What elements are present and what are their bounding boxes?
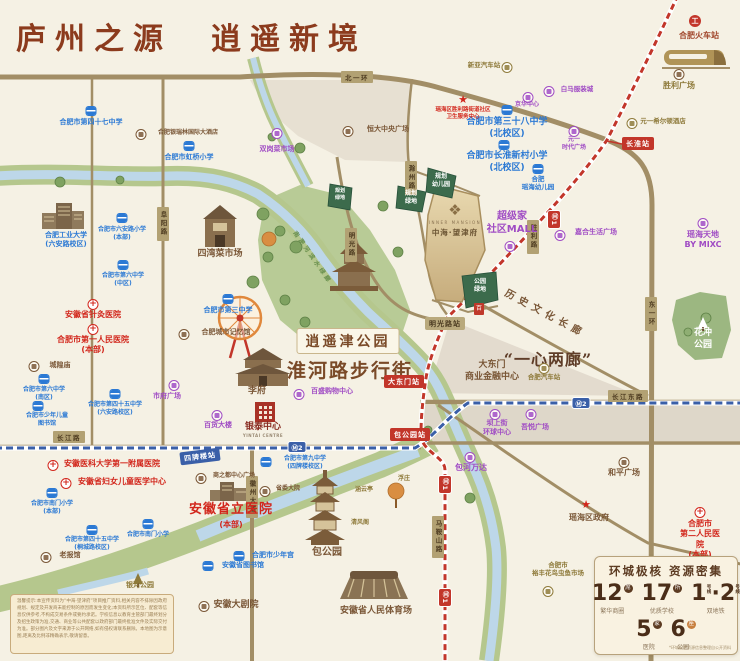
school-nanmen-south: 合肥市南门小学 (127, 531, 169, 539)
qingfengge-label: 清风阁 (351, 519, 369, 527)
yintai-logo (255, 402, 275, 422)
school-icon (262, 458, 271, 466)
mall-icon (212, 410, 223, 421)
health-service-center: 瑶海区胜利路街道社区 卫生服务中心 (435, 107, 490, 121)
road-changjianglu: 长江路 (53, 431, 85, 443)
hotel-icon (136, 129, 147, 140)
jinghua-center: 京华中心 (515, 101, 539, 109)
siwan-market-icon (203, 205, 237, 247)
peoples-stadium: 安徽省人民体育场 (340, 606, 412, 618)
museum-icon (41, 552, 52, 563)
school-hongqiao: 合肥市虹桥小学 (165, 153, 214, 162)
school-icon (48, 489, 57, 497)
plaza-icon (169, 380, 180, 391)
metro-1-badge: Ⓜ1 (547, 210, 561, 229)
school-no3: 合肥市第三中学 (204, 306, 253, 315)
hefei-bus-station: 合肥汽车站 (528, 373, 561, 381)
school-icon (503, 106, 512, 114)
hospital-second-people: 合肥市 第二人民医院 (本部) (680, 519, 720, 561)
station-changhuai: 长淮站 (622, 137, 654, 150)
site-name: 中海·望津府 (421, 227, 489, 238)
school-hfut: 合肥工业大学 (六安路校区) (45, 231, 87, 249)
school-icon (534, 165, 543, 173)
station-dadongmen: 大东门站 (384, 375, 424, 388)
road-beiyihuan: 北一环 (341, 71, 373, 83)
siwan-market-label: 四湾菜市场 (197, 249, 242, 261)
site-name-en: INNER MANSION (421, 220, 489, 225)
stat-hospitals: 5家 医院 (636, 619, 661, 651)
jiahe-plaza: 嘉合生活广场 (575, 228, 617, 237)
yintai-center: 银泰中心 (245, 422, 281, 434)
mall-icon (555, 230, 566, 241)
anhui-grand-theater: 安徽大剧院 (213, 600, 258, 612)
bus-station-icon (502, 62, 513, 73)
school-no45-south: 合肥市第四十五中学 (桐城路校区) (65, 536, 119, 552)
hospital-shengli: 安徽省立医院 (189, 502, 273, 519)
fuzhuang-label: 浮庄 (398, 475, 410, 483)
xiaoyaojin-park-label: 逍遥津公园 (297, 328, 400, 354)
laobao-hall: 老报馆 (60, 551, 81, 560)
yintai-center-en: YINTAI CENTRE (243, 433, 283, 438)
metro-2-badge: Ⓜ2 (287, 441, 306, 453)
school-nanmen-north: 合肥市南门小学 (本部) (31, 500, 73, 516)
stat-metro: 1号线·2号线 双地铁 (691, 583, 740, 615)
school-icon (40, 375, 49, 383)
yaohai-kindergarten: 合肥 瑶海幼儿园 (522, 175, 555, 192)
site-logo-icon: ❖ (421, 203, 489, 218)
yinruilin-hotel: 合肥银瑞林国际大酒店 (158, 129, 218, 137)
baogongyuan-label: 包公园 (312, 546, 342, 559)
station-baogongyuan: 包公园站 (390, 428, 430, 441)
stat-schools: 17所 优质学校 (642, 583, 683, 615)
school-icon (119, 261, 128, 269)
hospital-building-icon (210, 482, 250, 501)
baima-clothing-city: 白马服装城 (561, 85, 594, 93)
school-icon (235, 552, 244, 560)
school-no45-north: 合肥市第四十五中学 (六安路校区) (88, 401, 142, 417)
school-icon (111, 390, 120, 398)
planned-kindergarten-label: 规划 幼儿园 (432, 173, 450, 189)
station-mingguanglu: 明光路站 (425, 317, 465, 330)
heping-plaza: 和平广场 (608, 468, 640, 478)
hospital-cross-icon (88, 299, 99, 310)
yaohai-government: 瑶海区政府 (569, 513, 609, 523)
kids-library: 合肥市少年儿童 图书馆 (26, 412, 68, 428)
yinhe-park-label: 银河公园 (126, 581, 154, 590)
hospital-cross-icon (48, 460, 59, 471)
plaza-icon (619, 457, 630, 468)
shengli-plaza: 胜利广场 (663, 81, 695, 91)
train-icon (662, 50, 730, 68)
road-changjiangdonglu: 长江东路 (608, 390, 648, 402)
hospital-shengli-sub: (本部) (219, 520, 242, 530)
youth-palace: 合肥市少年宫 (252, 551, 294, 560)
railway-station-label: 合肥火车站 (679, 31, 719, 41)
lifu-label: 李府 (248, 386, 266, 398)
xinya-bus-station: 新亚汽车站 (468, 61, 501, 69)
school-icon (144, 520, 153, 528)
school-icon (118, 214, 127, 222)
chenghuang-temple: 城隍庙 (50, 361, 71, 370)
theater-icon (199, 601, 210, 612)
school-no6-south: 合肥市第六中学 (南区) (23, 386, 65, 402)
road-mingguanglu: 明光路 (345, 228, 357, 262)
mall-icon (465, 452, 476, 463)
hospital-anyi-fuyuan: 安徽医科大学第一附属医院 (64, 459, 160, 469)
market-icon (272, 128, 283, 139)
disclaimer-text: 温馨提示:本宣传资料为“中海·望津府”项目推广资料,相关内容不排除因政府规划、规… (10, 594, 174, 654)
road-maanshanlu: 马鞍山路 (432, 516, 444, 558)
planned-green-label: 规划 绿地 (405, 190, 417, 206)
mall-icon (698, 218, 709, 229)
plaza-icon (343, 126, 354, 137)
hengda-central-plaza: 恒大中央广场 (367, 125, 409, 134)
hilton-hotel: 元一希尔顿酒店 (640, 117, 686, 125)
park-green-label: 公园 绿地 (474, 278, 486, 294)
hotel-icon (627, 118, 638, 129)
stat-business: 12席 繁华商圈 (592, 583, 633, 615)
temple-icon (29, 361, 40, 372)
yaohai-tiandi: 瑶海天地 BY MIXC (685, 230, 722, 251)
star-icon (458, 94, 468, 105)
school-icon (87, 107, 96, 115)
school-no47: 合肥市第四十七中学 (60, 118, 123, 127)
hospital-cross-icon (88, 324, 99, 335)
star-icon (581, 499, 591, 510)
map-poster: 庐州之源 逍遥新境 (0, 0, 740, 661)
baida-logo: 百 (474, 303, 484, 315)
hospital-fuyou: 安徽省妇女儿童医学中心 (78, 477, 166, 487)
hospital-cross-icon (695, 507, 706, 518)
stats-row-1: 12席 繁华商圈 17所 优质学校 1号线·2号线 双地铁 (595, 583, 737, 615)
shengwei-compound: 省委大院 (276, 485, 300, 493)
market-icon (543, 586, 554, 597)
school-icon (500, 141, 509, 149)
mall-icon (196, 473, 207, 484)
baohe-wanda: 包河万达 (455, 463, 487, 473)
yuanyi-times-plaza: 元一 时代广场 (562, 136, 586, 152)
department-store: 百货大楼 (204, 421, 232, 430)
school-luanlu-primary: 合肥市六安路小学 (本部) (98, 226, 146, 242)
metro-1-badge: Ⓜ1 (438, 475, 452, 494)
hospital-first-people: 合肥市第一人民医院 (本部) (57, 335, 129, 356)
school-icon (88, 526, 97, 534)
road-dongyihuan: 东一环 (645, 297, 657, 331)
shuanggang-market: 双岗菜市场 (260, 145, 295, 154)
dadongmen-business-label: 大东门 商业金融中心 (465, 360, 519, 383)
shangzhidu-plaza: 商之都中心广场 (213, 472, 255, 480)
metro-1-badge: Ⓜ1 (438, 588, 452, 607)
city-memory-hall: 合肥城市记忆馆 (202, 328, 251, 337)
hospital-cross-icon (61, 478, 72, 489)
hfut-building-icon (42, 203, 84, 229)
shifu-plaza: 市府广场 (153, 392, 181, 401)
wuyue-plaza: 吾悦广场 (521, 423, 549, 432)
parkson-mall: 百盛购物中心 (311, 387, 353, 396)
mall-icon (544, 86, 555, 97)
tree-icon (698, 312, 708, 328)
school-no9: 合肥市第九中学 (四牌楼校区) (284, 455, 326, 471)
school-icon (204, 562, 213, 570)
school-no6-north: 合肥市第六中学 (中区) (102, 272, 144, 288)
mall-icon (505, 241, 516, 252)
stats-footnote: *环城配套资源信息整理自公开资料 (669, 645, 731, 651)
mall-icon (526, 409, 537, 420)
museum-icon (179, 329, 190, 340)
hanyunting-label: 涵云亭 (355, 486, 373, 494)
yufeng-market: 合肥市 裕丰花鸟虫鱼市场 (532, 561, 584, 578)
stats-title: 环城极核 资源密集 (595, 563, 737, 579)
school-icon (34, 402, 43, 410)
plaza-icon (674, 69, 685, 80)
bashangjie-center: 坝上街 环球中心 (483, 419, 511, 437)
hospital-zhenjiu: 安徽省针灸医院 (65, 310, 121, 320)
mall-icon (294, 389, 305, 400)
chaojijia-mall: 超级家 社区MALL (487, 210, 537, 236)
stadium-icon (340, 571, 408, 599)
lifu-building-icon (235, 348, 291, 386)
planned-green-label: 规划 绿地 (335, 188, 345, 201)
anhui-library: 安徽省图书馆 (222, 561, 264, 570)
railway-icon: 工 (689, 15, 701, 27)
road-fuyanglu: 阜阳路 (157, 207, 169, 241)
school-icon (185, 142, 194, 150)
page-title: 庐州之源 逍遥新境 (16, 14, 367, 58)
huachong-park-label: 花冲 公园 (694, 328, 712, 351)
metro-2-badge: Ⓜ2 (571, 397, 590, 409)
school-icon (224, 295, 233, 303)
stats-panel: 环城极核 资源密集 12席 繁华商圈 17所 优质学校 1号线·2号线 双地铁 … (594, 556, 738, 655)
project-site: ❖ INNER MANSION 中海·望津府 (421, 203, 489, 238)
gov-icon (260, 486, 271, 497)
